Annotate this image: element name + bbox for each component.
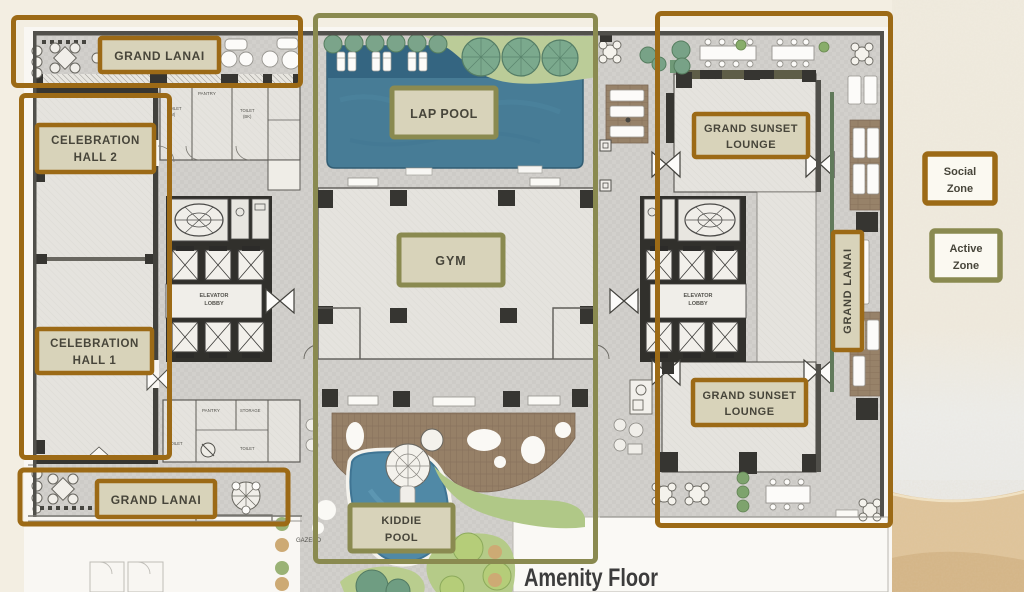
- svg-text:Zone: Zone: [953, 260, 979, 272]
- svg-text:CELEBRATION: CELEBRATION: [51, 135, 140, 147]
- svg-text:LAP POOL: LAP POOL: [410, 107, 478, 121]
- svg-text:Social: Social: [944, 166, 976, 178]
- svg-text:HALL 1: HALL 1: [73, 355, 117, 367]
- svg-text:CELEBRATION: CELEBRATION: [50, 338, 139, 350]
- svg-text:Active: Active: [949, 243, 982, 255]
- svg-text:LOUNGE: LOUNGE: [724, 406, 774, 418]
- svg-text:GRAND LANAI: GRAND LANAI: [111, 493, 202, 507]
- svg-text:GRAND LANAI: GRAND LANAI: [842, 248, 854, 334]
- svg-text:GYM: GYM: [435, 254, 466, 268]
- svg-text:GRAND LANAI: GRAND LANAI: [114, 49, 205, 63]
- svg-text:GRAND SUNSET: GRAND SUNSET: [702, 390, 796, 402]
- svg-text:LOUNGE: LOUNGE: [726, 139, 776, 151]
- svg-text:Amenity Floor: Amenity Floor: [524, 564, 658, 592]
- svg-text:KIDDIE: KIDDIE: [381, 515, 421, 527]
- svg-text:POOL: POOL: [385, 532, 418, 544]
- svg-text:Zone: Zone: [947, 183, 973, 195]
- svg-text:GRAND SUNSET: GRAND SUNSET: [704, 123, 798, 135]
- svg-text:HALL 2: HALL 2: [74, 152, 118, 164]
